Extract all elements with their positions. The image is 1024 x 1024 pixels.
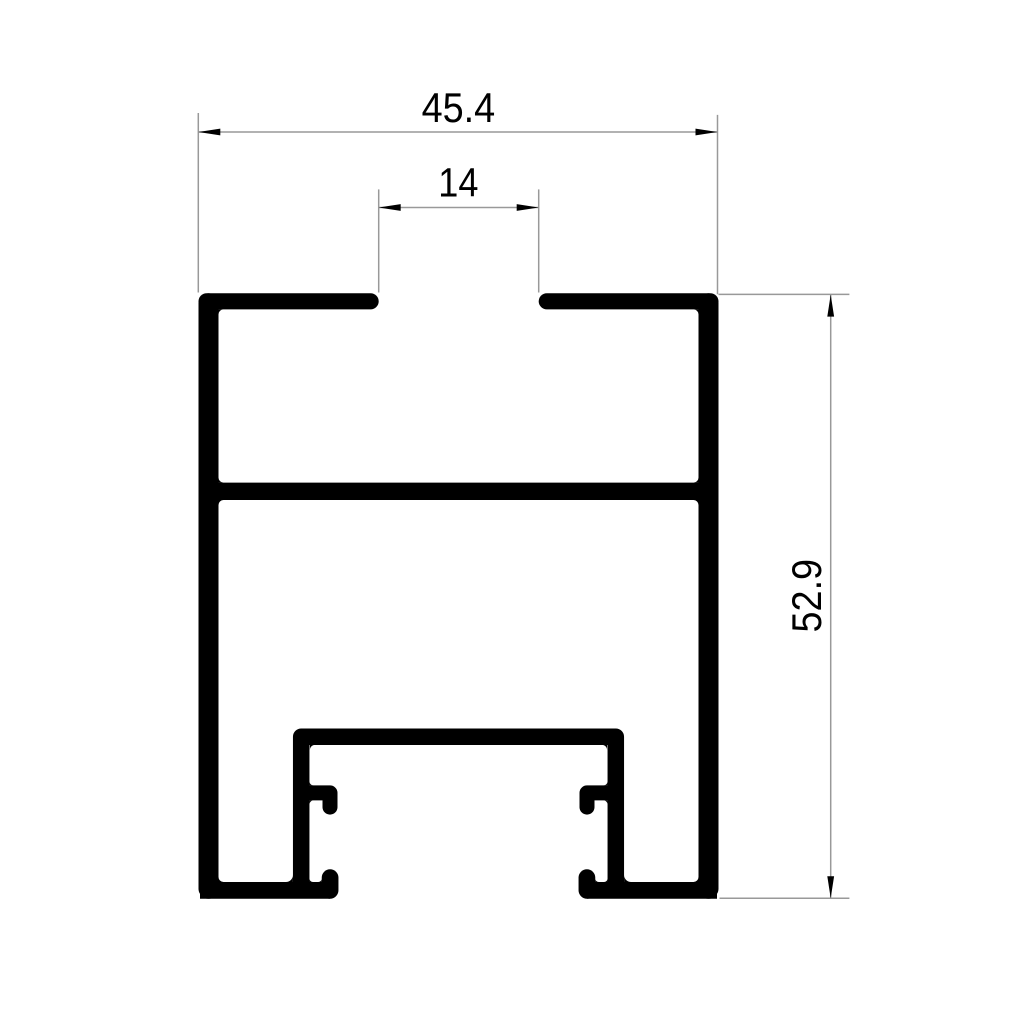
svg-text:45.4: 45.4 <box>422 85 496 131</box>
svg-text:52.9: 52.9 <box>784 559 830 633</box>
svg-text:14: 14 <box>438 161 478 207</box>
